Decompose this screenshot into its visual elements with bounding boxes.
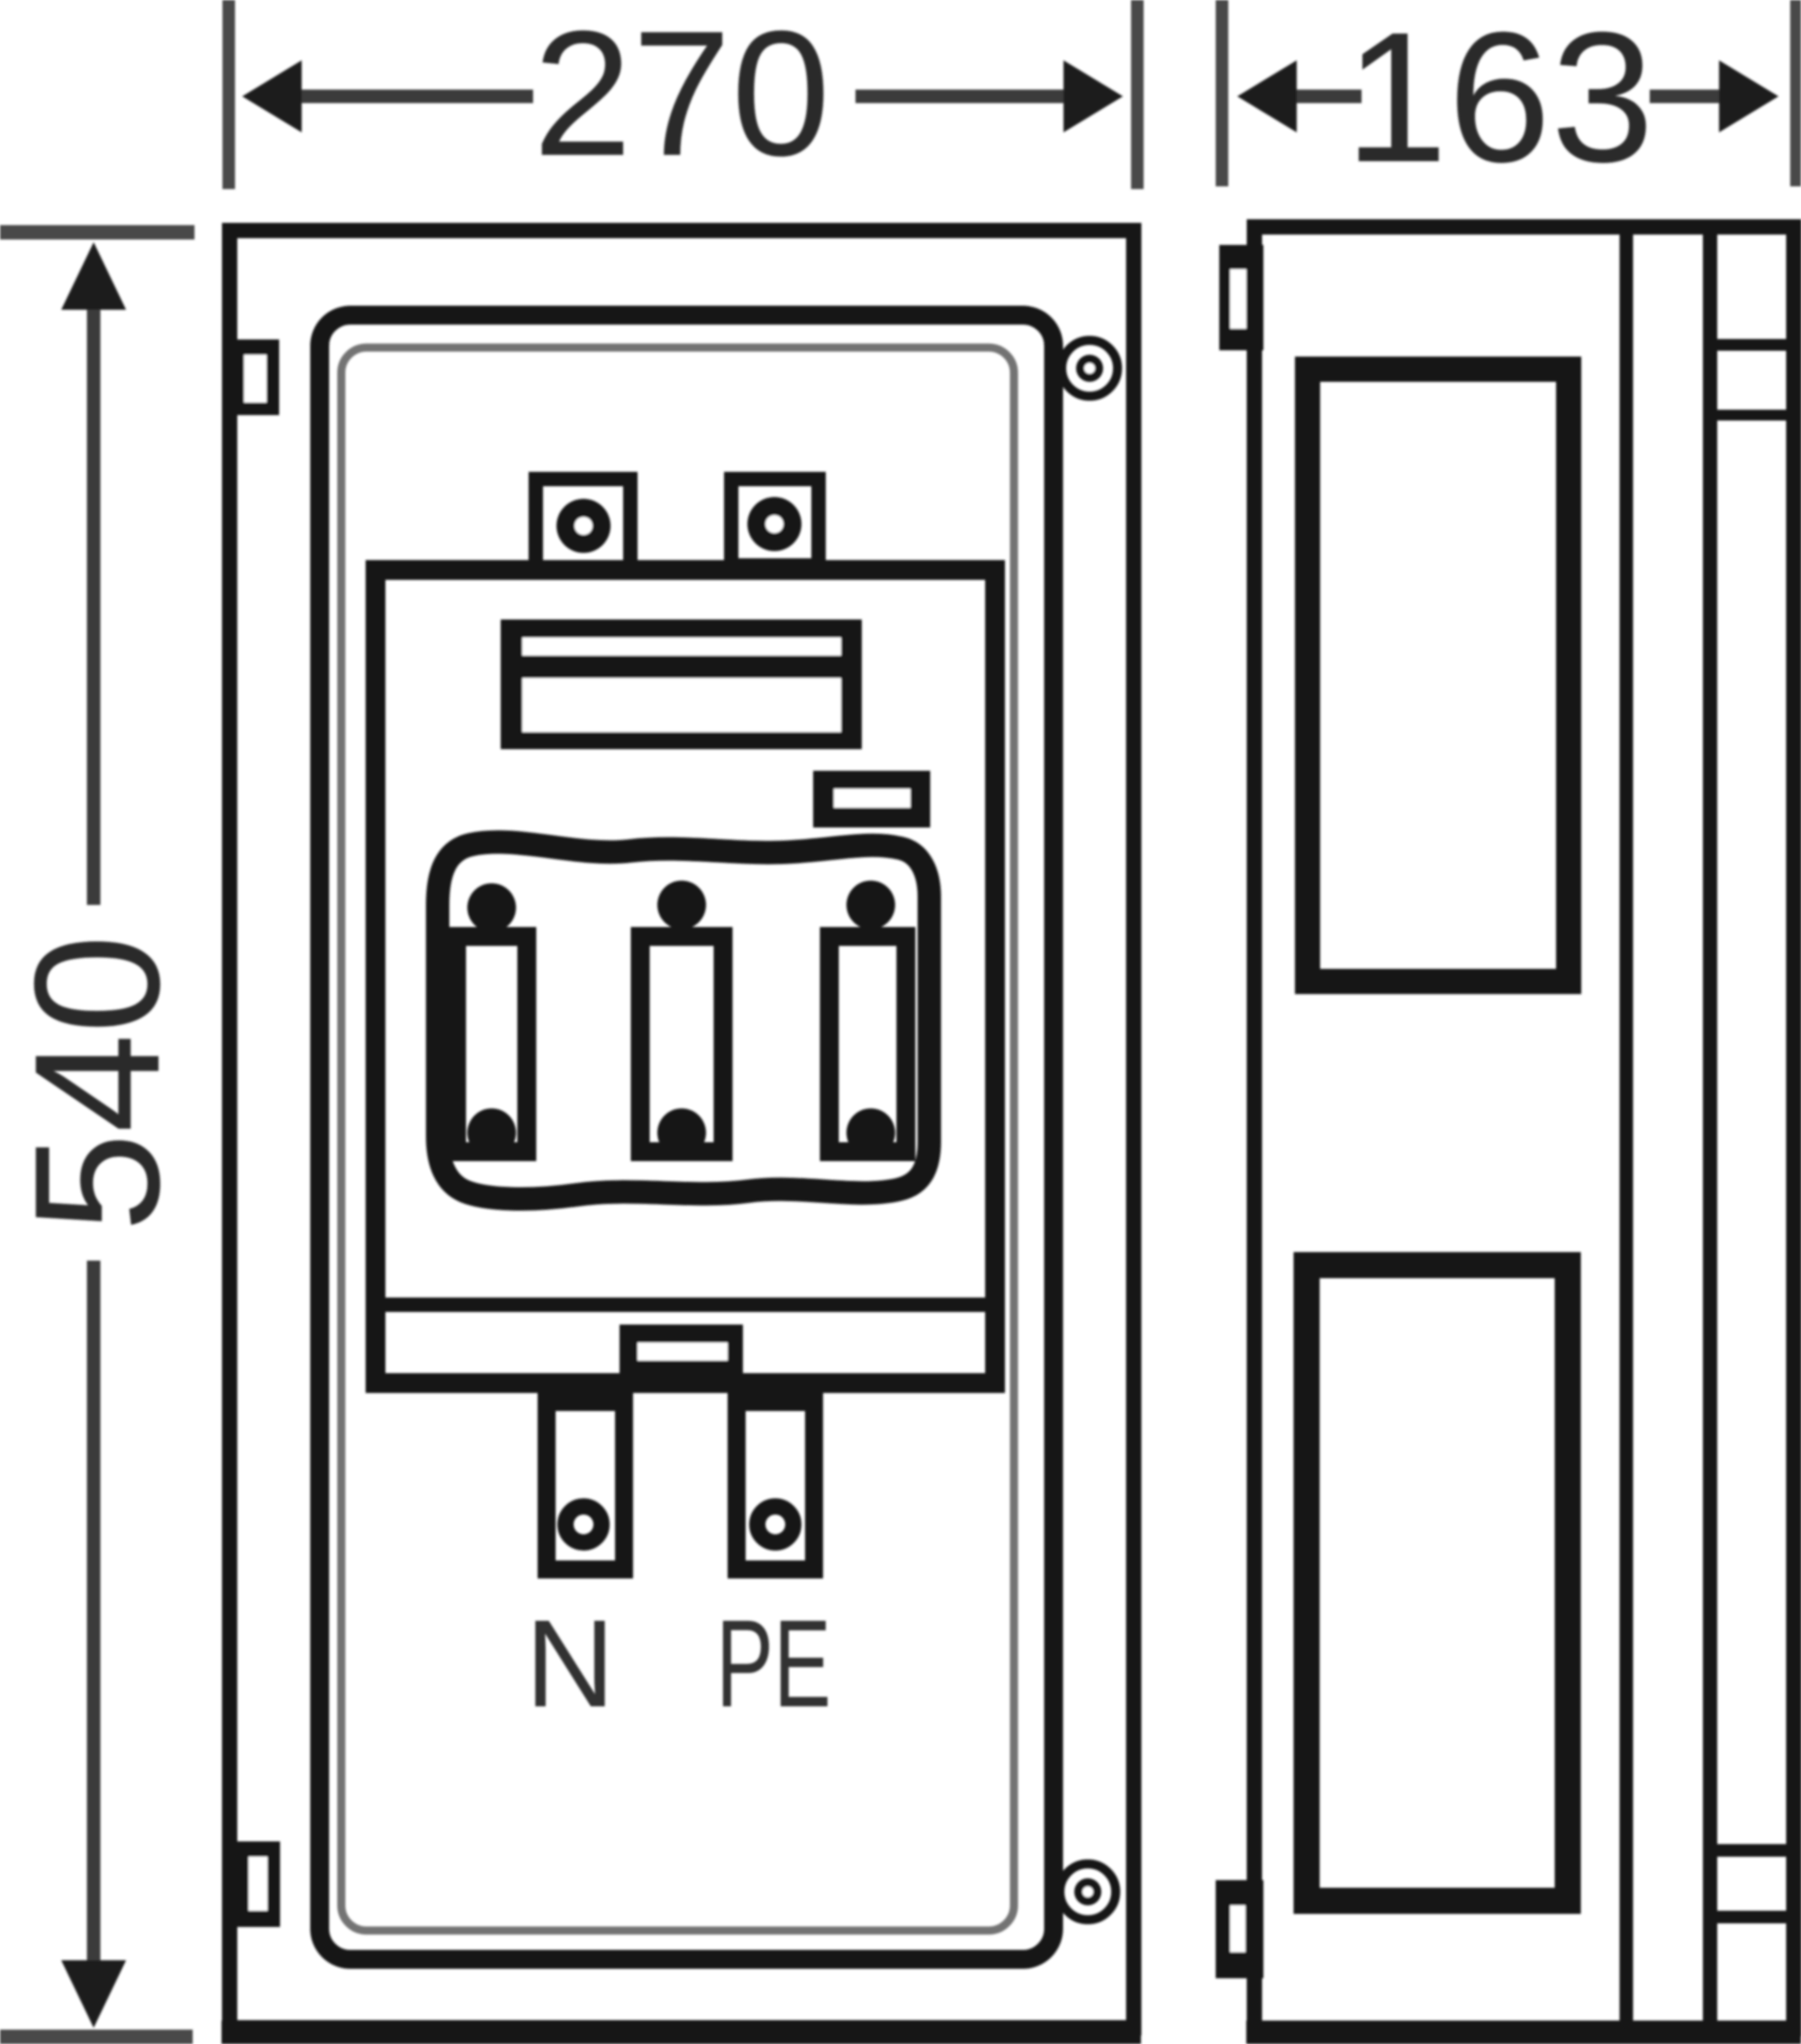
svg-text:270: 270	[533, 0, 830, 193]
svg-text:PE: PE	[716, 1595, 831, 1733]
svg-text:163: 163	[1344, 0, 1654, 201]
svg-text:N: N	[525, 1595, 615, 1733]
svg-text:540: 540	[0, 935, 196, 1232]
